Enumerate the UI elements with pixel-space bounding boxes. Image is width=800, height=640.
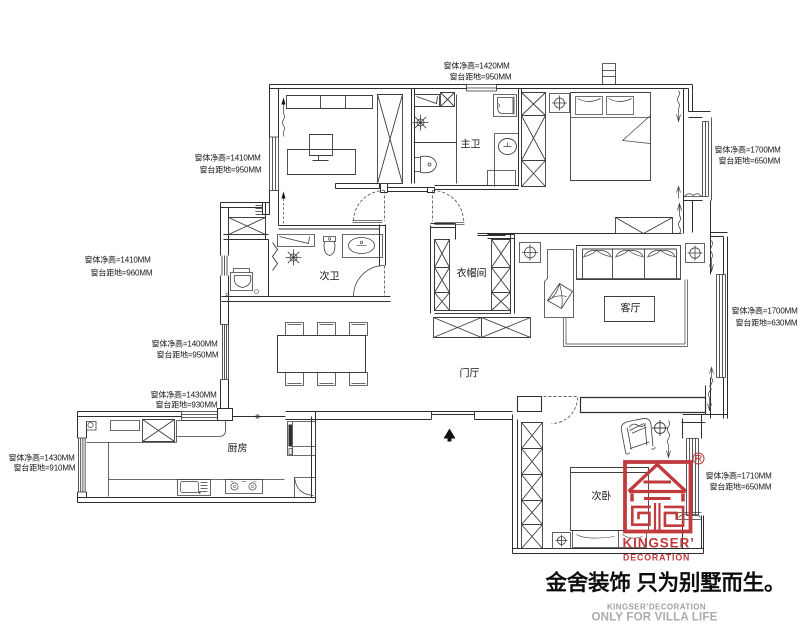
- svg-text:窗台距地=950MM: 窗台距地=950MM: [157, 350, 219, 360]
- svg-text:厨房: 厨房: [228, 442, 248, 455]
- svg-text:窗体净高=1700MM: 窗体净高=1700MM: [732, 306, 799, 316]
- svg-text:窗体净高=1410MM: 窗体净高=1410MM: [85, 255, 152, 265]
- svg-text:窗体净高=1400MM: 窗体净高=1400MM: [152, 339, 219, 349]
- svg-text:窗台距地=630MM: 窗台距地=630MM: [736, 318, 798, 328]
- svg-text:窗台距地=650MM: 窗台距地=650MM: [710, 482, 772, 492]
- svg-text:窗台距地=650MM: 窗台距地=650MM: [719, 156, 781, 166]
- svg-text:窗台距地=930MM: 窗台距地=930MM: [156, 400, 218, 410]
- svg-text:KINGSER’DECORATION: KINGSER’DECORATION: [607, 603, 706, 612]
- svg-text:次卫: 次卫: [320, 270, 340, 283]
- svg-text:DECORATION: DECORATION: [623, 553, 690, 563]
- svg-text:窗台距地=950MM: 窗台距地=950MM: [200, 165, 262, 175]
- svg-text:窗体净高=1710MM: 窗体净高=1710MM: [706, 471, 773, 481]
- svg-text:窗台距地=950MM: 窗台距地=950MM: [450, 72, 512, 82]
- svg-text:衣帽间: 衣帽间: [457, 267, 487, 280]
- svg-text:KINGSER’: KINGSER’: [623, 536, 695, 551]
- svg-text:金舍装饰 只为别墅而生。: 金舍装饰 只为别墅而生。: [545, 570, 786, 595]
- svg-text:主卫: 主卫: [461, 139, 481, 151]
- svg-text:客厅: 客厅: [621, 302, 641, 315]
- svg-text:窗体净高=1430MM: 窗体净高=1430MM: [9, 453, 76, 463]
- svg-text:窗体净高=1700MM: 窗体净高=1700MM: [715, 145, 782, 155]
- svg-text:窗体净高=1410MM: 窗体净高=1410MM: [195, 153, 262, 163]
- svg-text:窗体净高=1420MM: 窗体净高=1420MM: [444, 61, 511, 71]
- svg-text:ONLY FOR VILLA LIFE: ONLY FOR VILLA LIFE: [591, 612, 717, 624]
- svg-text:窗台距地=960MM: 窗台距地=960MM: [91, 268, 153, 278]
- svg-text:次卧: 次卧: [592, 490, 612, 503]
- svg-text:门厅: 门厅: [460, 367, 480, 380]
- svg-text:窗台距地=910MM: 窗台距地=910MM: [14, 463, 76, 473]
- svg-text:窗体净高=1430MM: 窗体净高=1430MM: [151, 390, 218, 400]
